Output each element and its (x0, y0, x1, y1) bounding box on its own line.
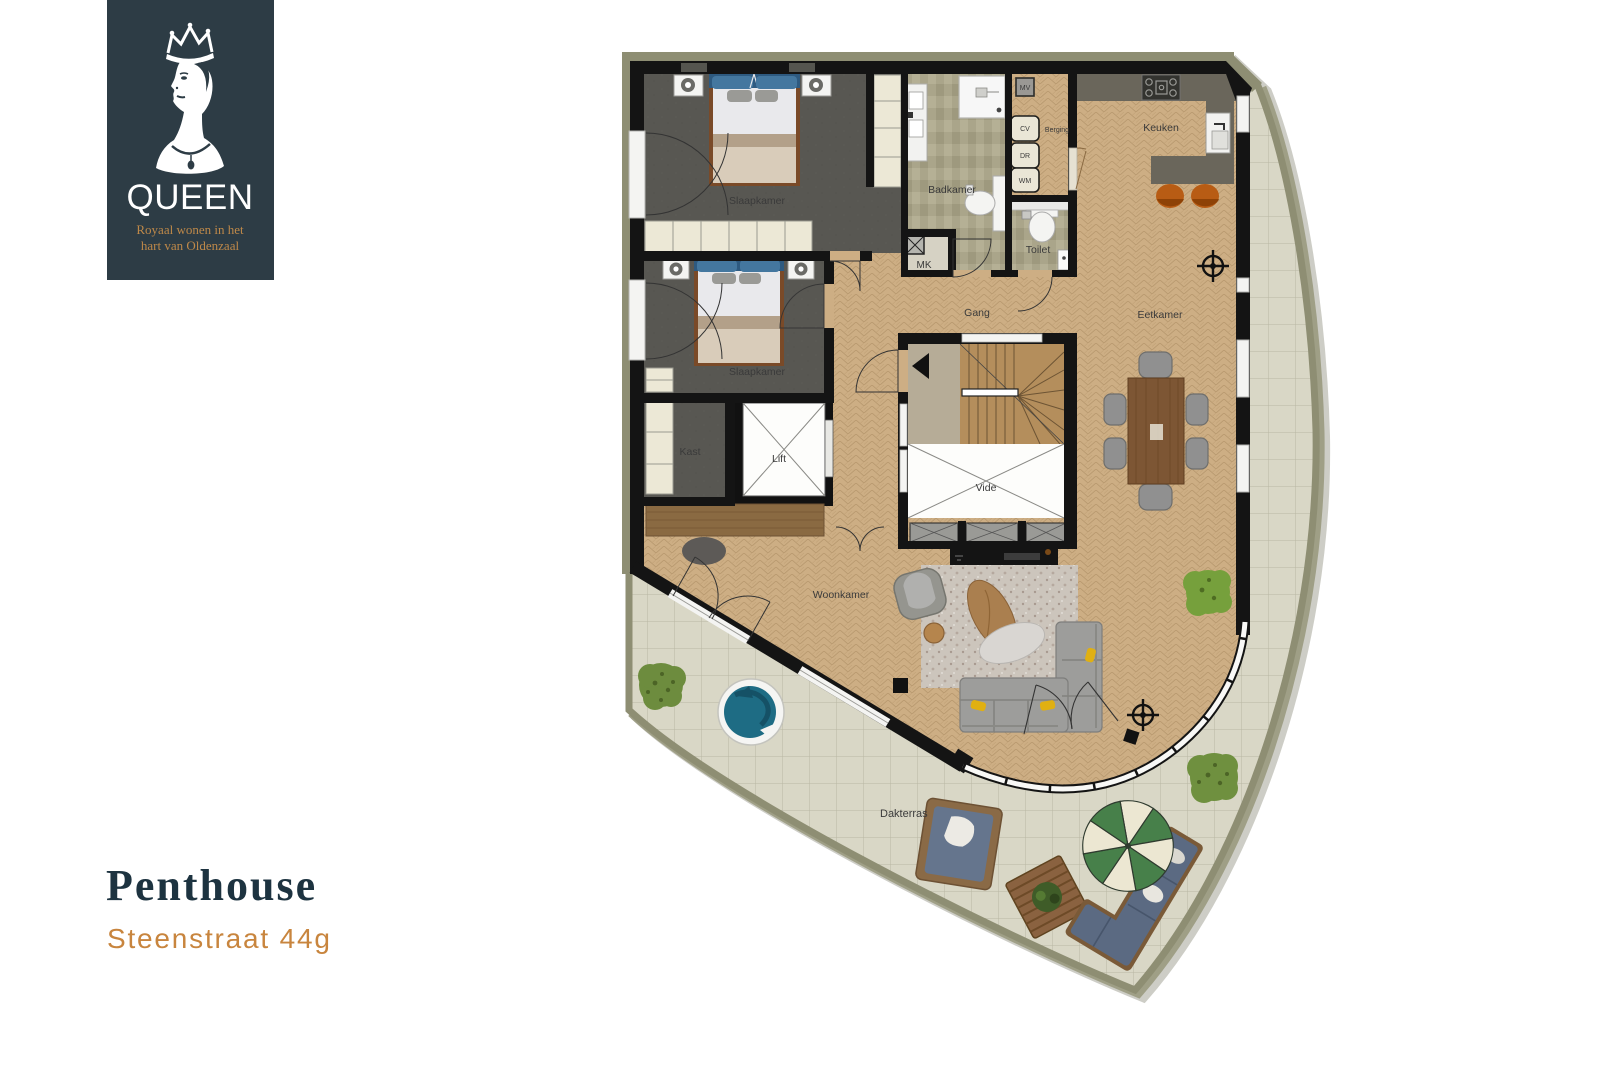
svg-text:hart van Oldenzaal: hart van Oldenzaal (141, 238, 240, 253)
svg-text:Lift: Lift (772, 453, 786, 465)
svg-text:Toilet: Toilet (1026, 244, 1051, 256)
svg-text:Dakterras: Dakterras (880, 808, 928, 820)
svg-text:Royaal wonen in het: Royaal wonen in het (136, 222, 244, 237)
svg-text:Gang: Gang (964, 307, 990, 319)
svg-text:Eetkamer: Eetkamer (1138, 309, 1183, 321)
svg-text:Steenstraat 44g: Steenstraat 44g (107, 923, 332, 954)
svg-text:Woonkamer: Woonkamer (813, 589, 870, 601)
svg-text:Badkamer: Badkamer (928, 184, 976, 196)
svg-text:QUEEN: QUEEN (127, 178, 254, 217)
svg-text:Kast: Kast (679, 446, 700, 458)
svg-text:Slaapkamer: Slaapkamer (729, 366, 786, 378)
svg-text:MV: MV (1020, 85, 1031, 92)
svg-text:MK: MK (917, 260, 932, 271)
svg-text:DR: DR (1020, 153, 1030, 160)
svg-text:Penthouse: Penthouse (106, 861, 317, 910)
svg-text:Keuken: Keuken (1143, 122, 1179, 134)
svg-text:Vide: Vide (976, 482, 997, 494)
svg-text:WM: WM (1019, 178, 1032, 185)
svg-text:Slaapkamer: Slaapkamer (729, 195, 786, 207)
svg-text:CV: CV (1020, 126, 1030, 133)
svg-text:Berging: Berging (1045, 127, 1069, 134)
